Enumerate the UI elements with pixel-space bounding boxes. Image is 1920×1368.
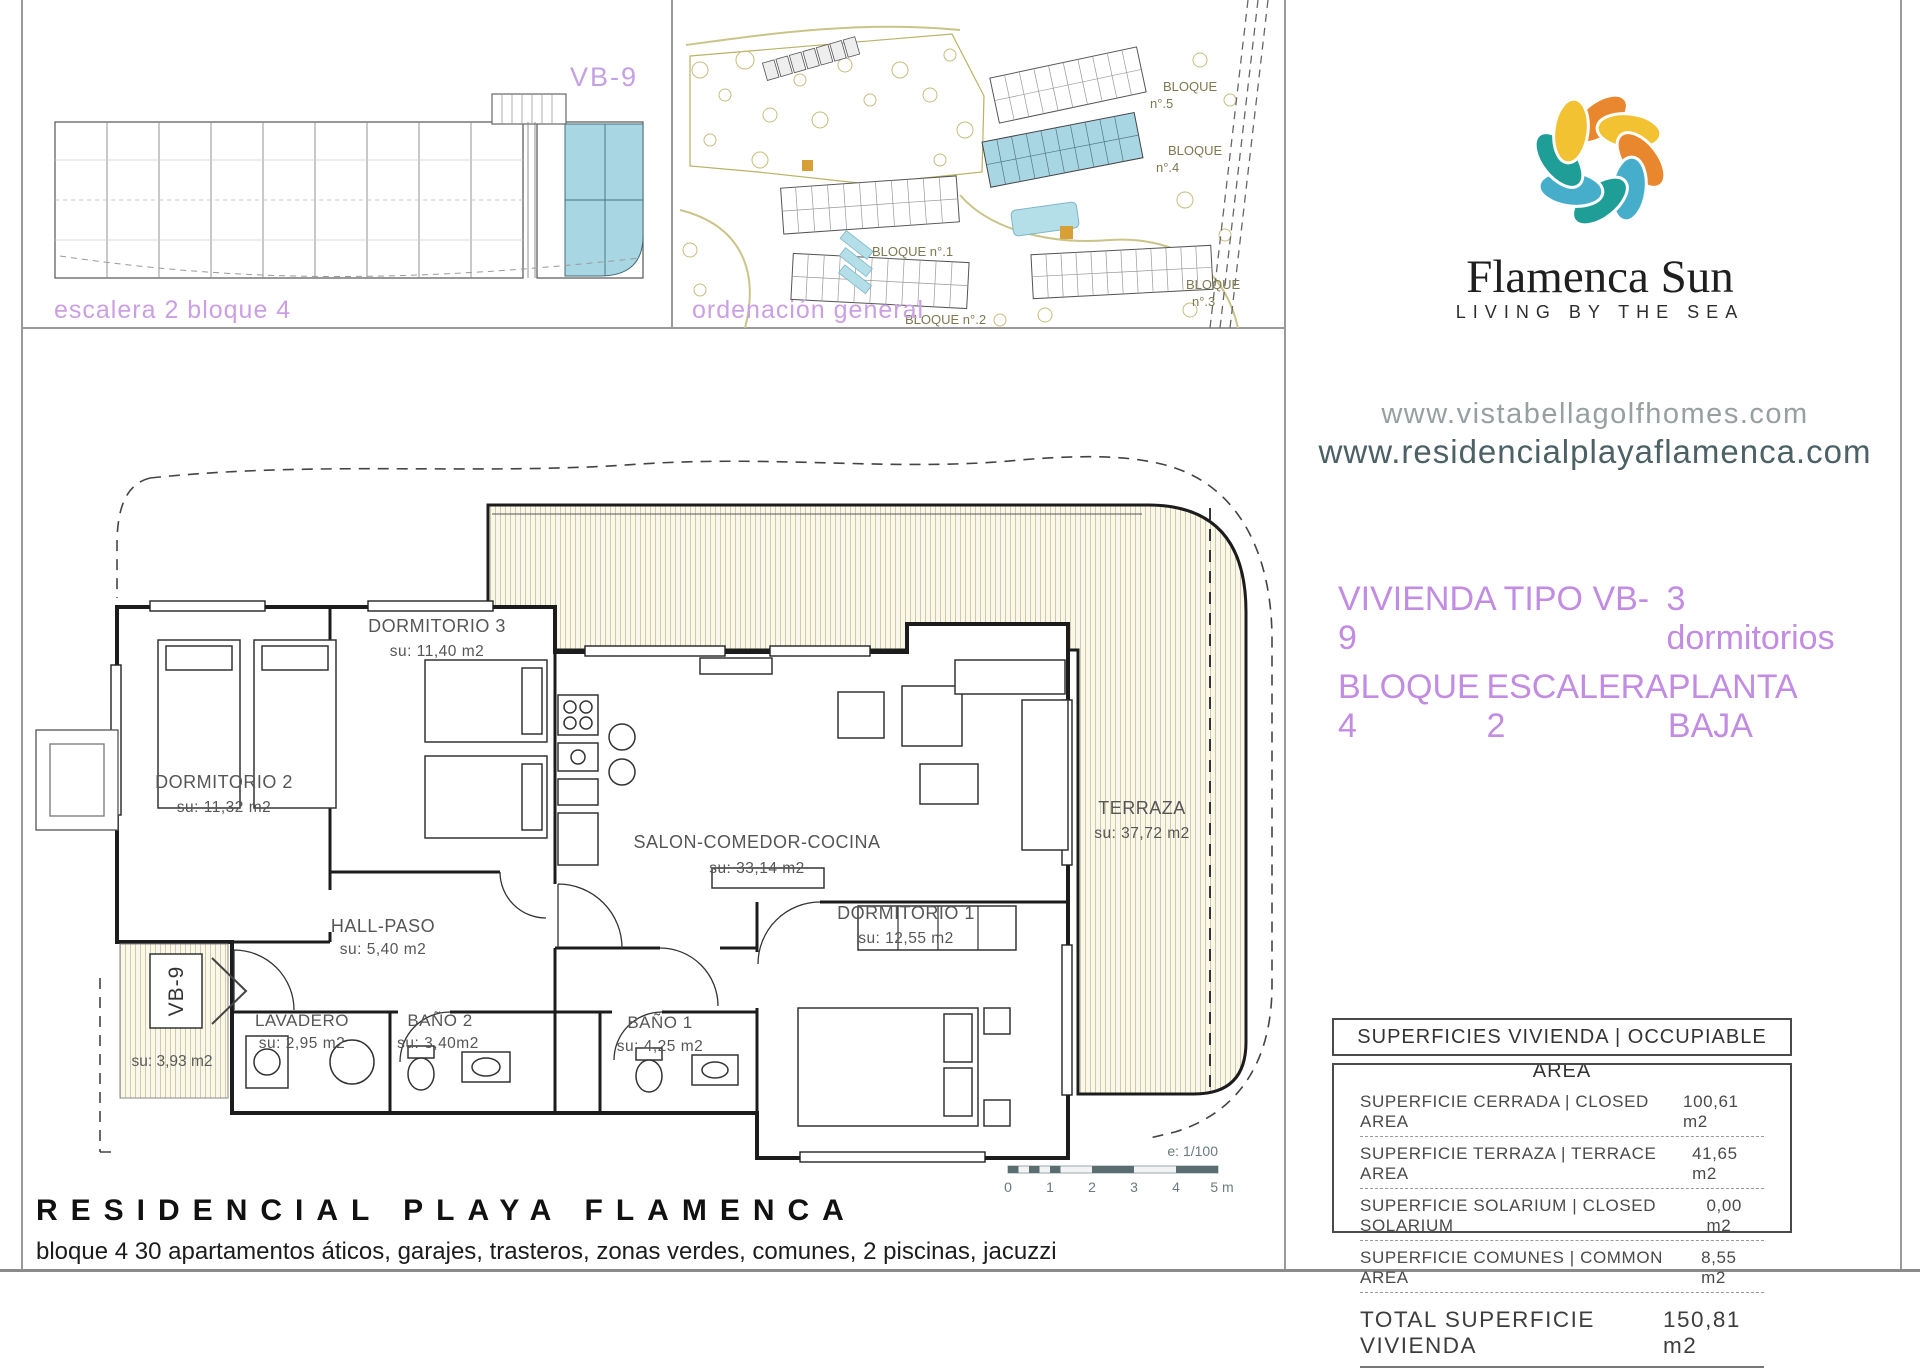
svg-text:su: 4,25 m2: su: 4,25 m2 <box>617 1038 704 1055</box>
svg-text:su: 12,55 m2: su: 12,55 m2 <box>858 930 954 947</box>
siteplan-label-b1: BLOQUE n°.1 <box>872 244 953 259</box>
keyplan-caption: escalera 2 bloque 4 <box>54 296 291 325</box>
table-row: SUPERFICIE CERRADA | CLOSED AREA 100,61 … <box>1360 1085 1764 1137</box>
pinwheel-icon <box>1526 86 1674 234</box>
svg-text:su: 11,40 m2: su: 11,40 m2 <box>390 643 484 660</box>
svg-text:0: 0 <box>1004 1179 1012 1195</box>
website-link-2: www.residencialplayaflamenca.com <box>1290 433 1900 471</box>
siteplan-block-5 <box>990 47 1146 123</box>
table-row: SUPERFICIE SOLARIUM | CLOSED SOLARIUM 0,… <box>1360 1189 1764 1241</box>
siteplan-garages <box>762 37 859 81</box>
table-row: SUPERFICIE COMUNES | COMMON AREA 8,55 m2 <box>1360 1241 1764 1293</box>
room-label-hall: HALL-PASO <box>331 916 435 936</box>
svg-text:su: 33,14 m2: su: 33,14 m2 <box>709 860 805 877</box>
brand-logo-icon <box>1420 20 1780 250</box>
svg-text:5 m: 5 m <box>1210 1179 1233 1195</box>
siteplan-label-b5: BLOQUE <box>1163 79 1218 94</box>
project-subtitle: bloque 4 30 apartamentos áticos, garajes… <box>36 1238 1057 1266</box>
svg-text:su: 2,95 m2: su: 2,95 m2 <box>259 1035 346 1052</box>
areas-table-header: SUPERFICIES VIVIENDA | OCCUPIABLE AREA <box>1332 1018 1792 1056</box>
room-label-dormitorio-3: DORMITORIO 3 <box>368 616 506 636</box>
listing-stair: ESCALERA 2 <box>1486 668 1667 746</box>
siteplan-caption: ordenación general <box>692 296 924 325</box>
brand-name: Flamenca Sun <box>1300 250 1900 304</box>
room-label-bano-2: BAÑO 2 <box>407 1011 472 1030</box>
keyplan-building <box>55 94 643 278</box>
siteplan-label-b4: BLOQUE <box>1168 143 1223 158</box>
porch-area-label: su: 3,93 m2 <box>132 1053 213 1070</box>
table-total-row: TOTAL SUPERFICIE VIVIENDA 150,81 m2 <box>1360 1293 1764 1368</box>
svg-text:n°.3: n°.3 <box>1192 294 1215 309</box>
svg-text:1: 1 <box>1046 1179 1054 1195</box>
svg-text:su: 11,32 m2: su: 11,32 m2 <box>177 799 271 816</box>
listing-type: VIVIENDA TIPO VB-9 <box>1338 580 1666 658</box>
siteplan-block-1 <box>781 176 960 234</box>
siteplan-marker <box>1060 226 1073 239</box>
room-label-dormitorio-1: DORMITORIO 1 <box>837 903 975 923</box>
siteplan-block-4-highlighted <box>982 113 1143 188</box>
listing-bedrooms: 3 dormitorios <box>1666 580 1862 658</box>
svg-text:su: 5,40 m2: su: 5,40 m2 <box>340 941 427 958</box>
siteplan-marker <box>802 160 813 171</box>
room-label-dormitorio-2: DORMITORIO 2 <box>155 772 293 792</box>
svg-text:3: 3 <box>1130 1179 1138 1195</box>
scale-ticks: 0 1 2 3 4 5 m <box>1004 1179 1234 1195</box>
room-label-terraza: TERRAZA <box>1098 798 1186 818</box>
project-title: RESIDENCIAL PLAYA FLAMENCA <box>36 1194 857 1228</box>
frame-right <box>1900 0 1902 1271</box>
keyplan-drawing: VB-9 <box>22 0 672 328</box>
listing-floor: PLANTA BAJA <box>1668 668 1862 746</box>
website-link-1: www.vistabellagolfhomes.com <box>1290 398 1900 431</box>
outdoor-structure <box>36 730 118 830</box>
room-label-salon: SALON-COMEDOR-COCINA <box>633 832 880 852</box>
svg-text:n°.5: n°.5 <box>1150 96 1173 111</box>
porch-unit-tag: VB-9 <box>165 966 188 1017</box>
siteplan-label-b3: BLOQUE <box>1186 277 1241 292</box>
keyplan-unit-tag: VB-9 <box>570 62 638 92</box>
scale-label: e: 1/100 <box>1167 1143 1218 1159</box>
svg-text:su: 37,72 m2: su: 37,72 m2 <box>1094 825 1190 842</box>
svg-text:4: 4 <box>1172 1179 1180 1195</box>
listing-heading: VIVIENDA TIPO VB-9 3 dormitorios BLOQUE … <box>1338 580 1862 746</box>
floorplan-drawing: VB-9 su: 3,93 m2 DORMITORIO 3 su: 11,40 … <box>22 328 1285 1272</box>
areas-table: SUPERFICIE CERRADA | CLOSED AREA 100,61 … <box>1332 1063 1792 1233</box>
svg-text:su: 3,40m2: su: 3,40m2 <box>397 1035 479 1052</box>
table-row: SUPERFICIE TERRAZA | TERRACE AREA 41,65 … <box>1360 1137 1764 1189</box>
brand-tagline: LIVING BY THE SEA <box>1300 302 1900 323</box>
svg-text:n°.4: n°.4 <box>1156 160 1179 175</box>
room-label-bano-1: BAÑO 1 <box>627 1013 692 1032</box>
svg-text:2: 2 <box>1088 1179 1096 1195</box>
siteplan-drawing: BLOQUE n°.5 BLOQUE n°.4 BLOQUE n°.1 BLOQ… <box>672 0 1285 328</box>
room-label-lavadero: LAVADERO <box>255 1011 349 1030</box>
listing-block: BLOQUE 4 <box>1338 668 1486 746</box>
